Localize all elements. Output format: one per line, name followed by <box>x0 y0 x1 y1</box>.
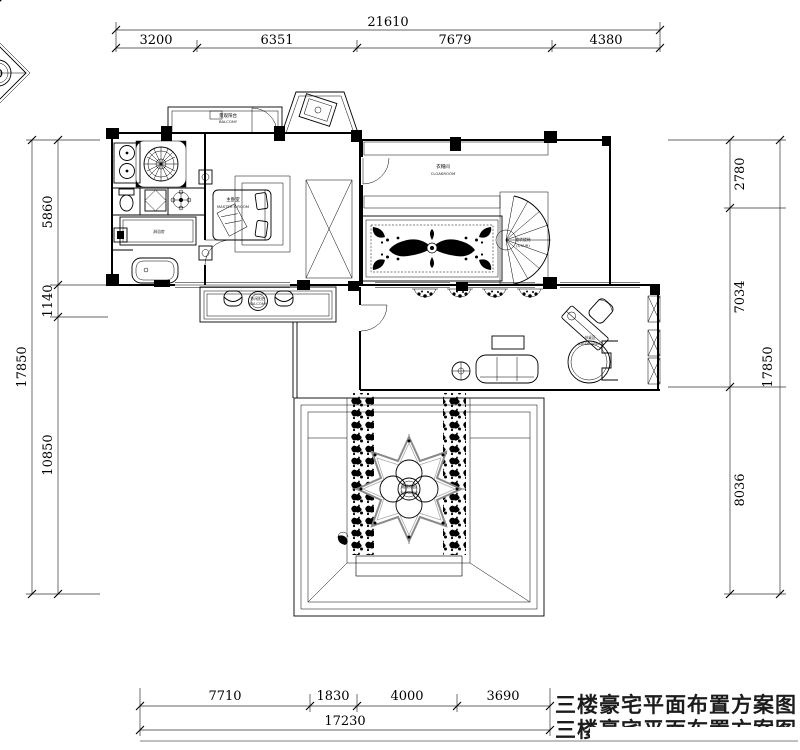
sofa <box>476 355 538 383</box>
balcony-top: 景观阳台 BALCONY <box>168 107 282 133</box>
cloakroom: 衣帽间 CLOAKROOM <box>360 140 660 285</box>
dim-right-seg1: 2780 <box>733 157 748 190</box>
master-bedroom: 主卧室 MASTER'S ROOM <box>199 170 352 278</box>
desk-area-label-zh: 书桌区 <box>584 335 596 340</box>
ceiling-medallion <box>136 141 186 187</box>
toilet <box>119 189 134 211</box>
dimension-chain-bottom: 7710 1830 4000 3690 17230 <box>136 688 554 736</box>
structural-columns <box>106 126 660 295</box>
dim-top-seg1: 3200 <box>139 33 172 48</box>
garden-star: 观景花园 (GARDEN) <box>0 0 466 544</box>
watermark-title: 三楼豪宅平面布置方案图 <box>555 693 797 717</box>
floor-lamp <box>452 362 470 380</box>
spiral-staircase: 旋转楼梯 (STAIR) <box>496 192 551 284</box>
shower-tray <box>145 190 166 211</box>
stair-label-zh: 旋转楼梯 <box>515 237 530 242</box>
dim-left-seg2: 1140 <box>41 284 56 317</box>
garden-label-zh: 观景花园 <box>401 484 416 489</box>
dim-top-total: 21610 <box>367 15 408 30</box>
dim-right-seg3: 8036 <box>733 473 748 506</box>
plant-band-right <box>443 393 466 555</box>
dimension-chain-top: 21610 3200 6351 7679 4380 <box>112 15 664 52</box>
master-room-label-en: MASTER'S ROOM <box>217 204 249 209</box>
dim-bottom-seg1: 7710 <box>208 689 241 704</box>
study-area: 书桌区 (DESK AREA) <box>561 296 660 384</box>
shower-floor-label: 淋浴房 <box>153 229 165 234</box>
chandelier-icon <box>171 190 191 210</box>
garden-terrace: 观景花园 (GARDEN) <box>0 0 544 616</box>
garden-label-en: (GARDEN) <box>399 490 419 495</box>
sitting-room <box>360 287 660 390</box>
dimension-chain-right: 2780 7034 8036 17850 <box>668 136 786 598</box>
compass-letter: D <box>0 67 3 82</box>
stair-label-en: (STAIR) <box>516 243 530 248</box>
cloakroom-label-zh: 衣帽间 <box>436 163 450 170</box>
dim-left-seg1: 5860 <box>41 195 56 228</box>
dim-left-seg3: 10850 <box>41 434 56 475</box>
ornate-carpet <box>362 216 502 281</box>
master-bathroom: 淋浴房 <box>112 133 230 285</box>
dim-bottom-seg2: 1830 <box>316 689 349 704</box>
desk-area-label-en: (DESK AREA) <box>578 341 603 346</box>
balcony-top-label-zh: 景观阳台 <box>219 112 237 119</box>
dim-top-seg2: 6351 <box>260 33 293 48</box>
dim-right-total: 17850 <box>761 346 776 387</box>
dim-top-seg4: 4380 <box>589 33 622 48</box>
middle-zone: 休闲阳台 BALCONY <box>200 283 660 399</box>
balcony-top-label-en: BALCONY <box>219 119 238 124</box>
leisure-balcony-label-en: BALCONY <box>249 301 268 306</box>
dimension-chain-left: 17850 5860 1140 10850 <box>15 136 108 598</box>
plant-band-left <box>350 393 374 555</box>
leisure-balcony: 休闲阳台 BALCONY <box>200 287 336 322</box>
dim-bottom-total: 17230 <box>324 714 365 729</box>
shower-floor: 淋浴房 <box>114 217 196 245</box>
compass-logo: D <box>0 41 30 105</box>
bathtub <box>132 258 178 283</box>
floor-plan-canvas: 21610 3200 6351 7679 4380 17850 5860 114… <box>0 0 800 750</box>
bay-window <box>282 92 358 133</box>
master-suite: 景观阳台 BALCONY <box>112 92 360 288</box>
dim-right-seg2: 7034 <box>733 280 748 313</box>
dim-bottom-seg3: 4000 <box>390 689 423 704</box>
carpet-damask <box>389 229 475 268</box>
master-room-label-zh: 主卧室 <box>226 196 240 203</box>
cloakroom-label-en: CLOAKROOM <box>431 171 456 176</box>
dim-bottom-seg4: 3690 <box>486 689 519 704</box>
dim-top-seg3: 7679 <box>438 33 471 48</box>
dim-left-total: 17850 <box>15 346 30 387</box>
floor-plan-screenshot: 21610 3200 6351 7679 4380 17850 5860 114… <box>0 0 800 750</box>
bedroom-wardrobe <box>306 180 352 278</box>
